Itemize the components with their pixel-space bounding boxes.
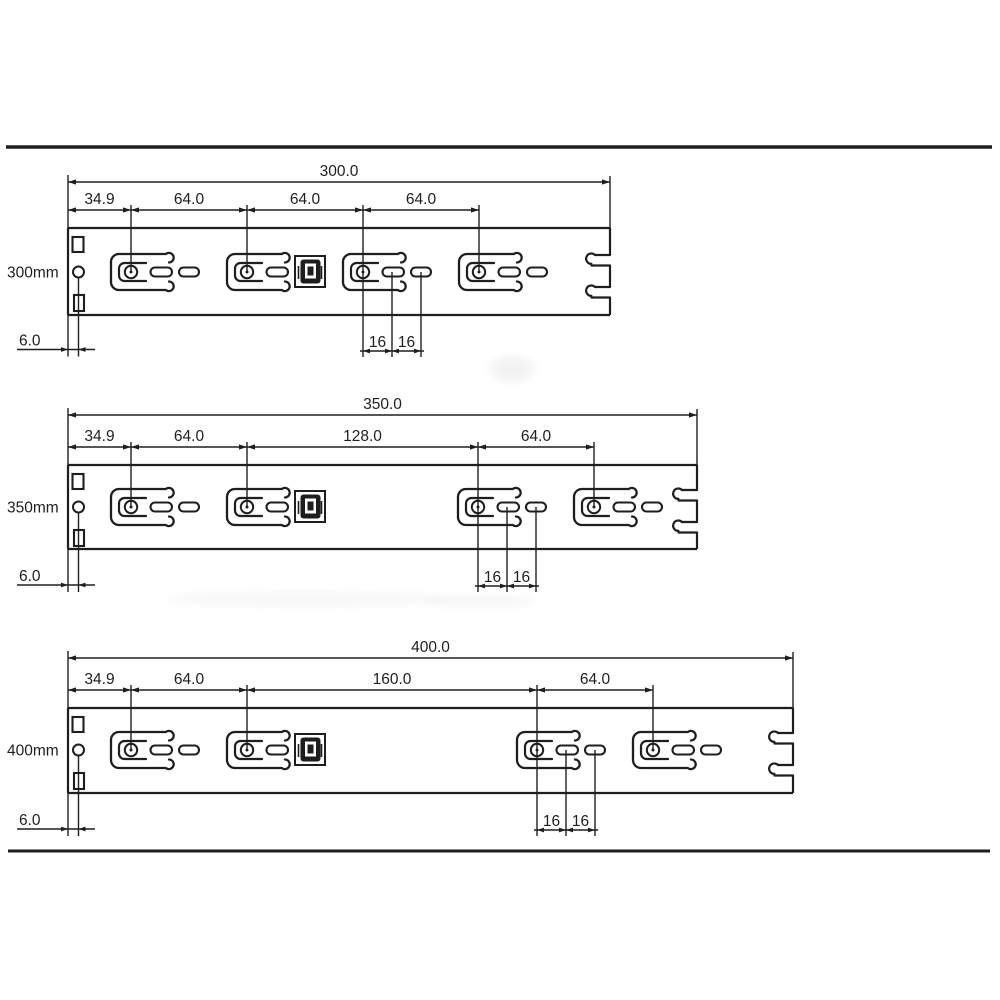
mounting-pill-slot (179, 268, 199, 277)
dim-arrow (239, 687, 247, 692)
pill-slot (267, 503, 289, 512)
keyhole-outer-outline (111, 488, 174, 526)
segment-dim-label: 64.0 (174, 191, 205, 208)
dim-arrow (123, 207, 131, 212)
dim-arrow (61, 827, 68, 832)
segment-dim-label: 160.0 (373, 671, 412, 688)
segment-dim-label: 64.0 (580, 671, 611, 688)
dim-arrow (239, 207, 247, 212)
latch-pin (308, 745, 314, 754)
offset-dim-label: 6.0 (19, 568, 41, 585)
keyhole-outer-outline (517, 731, 580, 769)
dimension-front-offset: 6.0 (17, 756, 95, 837)
dim-arrow (68, 179, 76, 184)
notch-hook-curl (586, 254, 595, 264)
rail-body (68, 708, 793, 793)
rear-hook-notch (769, 732, 793, 744)
dim-arrow (471, 207, 479, 212)
dim-arrow (363, 207, 371, 212)
keyhole-slot (111, 488, 174, 526)
keyhole-slot (343, 253, 406, 291)
dim-arrow (123, 444, 131, 449)
rear-hook-notch (769, 764, 793, 776)
rail-300mm: 300.034.964.064.064.016166.0300mm (7, 163, 610, 357)
front-hole (73, 745, 84, 756)
hole-spacing-label: 16 (369, 334, 386, 351)
scan-smudge (490, 356, 534, 382)
rail-length-label: 350mm (7, 500, 59, 517)
dimension-segments: 34.964.0128.064.0 (68, 428, 594, 507)
pill-slot (557, 746, 579, 755)
dim-arrow (247, 687, 255, 692)
pill-slot (498, 503, 520, 512)
dim-arrow (61, 583, 68, 588)
release-latch (295, 256, 325, 287)
dim-arrow (537, 687, 545, 692)
dim-arrow (586, 444, 594, 449)
segment-dim-label: 64.0 (521, 428, 552, 445)
dimension-total: 300.0 (68, 163, 610, 228)
rail-400mm: 400.034.964.0160.064.016166.0400mm (7, 639, 793, 836)
rail-350mm: 350.034.964.0128.064.016166.0350mm (7, 396, 697, 592)
keyhole-slot (227, 253, 290, 291)
segment-dim-label: 64.0 (174, 671, 205, 688)
scan-smudge (425, 594, 535, 608)
keyhole-slot (574, 488, 637, 526)
notch-hook-curl (673, 521, 682, 531)
dim-arrow (79, 827, 86, 832)
rear-hook-notch (586, 286, 610, 298)
segment-dim-label: 128.0 (343, 428, 382, 445)
notch-hook-curl (586, 286, 595, 296)
rail-length-label: 400mm (7, 743, 59, 760)
rail-length-label: 300mm (7, 265, 59, 282)
drawing-canvas: 300.034.964.064.064.016166.0300mm350.034… (0, 0, 1000, 1000)
segment-dim-label: 34.9 (84, 191, 114, 208)
keyhole-outer-outline (227, 253, 290, 291)
dim-arrow (79, 583, 86, 588)
hole-spacing-label: 16 (398, 334, 415, 351)
dim-arrow (68, 687, 76, 692)
front-rect-cutout (73, 717, 84, 732)
segment-dim-label: 64.0 (406, 191, 437, 208)
segment-dim-label: 64.0 (290, 191, 321, 208)
pill-slot (499, 268, 521, 277)
dim-arrow (68, 444, 76, 449)
dimension-total: 350.0 (68, 396, 697, 465)
offset-dim-label: 6.0 (19, 812, 41, 829)
drawing-page: 300.034.964.064.064.016166.0300mm350.034… (0, 0, 1000, 1000)
notch-hook-curl (769, 764, 778, 774)
dim-arrow (68, 207, 76, 212)
dim-arrow (355, 207, 363, 212)
dim-arrow (61, 347, 68, 352)
dim-arrow (247, 444, 255, 449)
total-length-label: 400.0 (411, 639, 450, 656)
keyhole-outer-outline (227, 488, 290, 526)
rail-body (68, 228, 610, 315)
offset-dim-label: 6.0 (19, 333, 41, 350)
pill-slot (267, 268, 289, 277)
pill-slot (383, 268, 405, 277)
mounting-pill-slot (179, 503, 199, 512)
dim-arrow (645, 687, 653, 692)
dim-arrow (689, 412, 697, 417)
notch-hook-curl (769, 732, 778, 742)
segment-dim-label: 34.9 (84, 428, 114, 445)
segment-dim-label: 64.0 (174, 428, 205, 445)
latch-pin (308, 502, 314, 511)
keyhole-outer-outline (459, 253, 522, 291)
dim-arrow (602, 179, 610, 184)
dimension-front-offset: 6.0 (17, 278, 95, 357)
scan-smudge (165, 591, 445, 607)
dim-arrow (131, 444, 139, 449)
front-rect-cutout (73, 474, 84, 489)
dim-arrow (68, 655, 76, 660)
keyhole-slot (227, 488, 290, 526)
dimension-segments: 34.964.0160.064.0 (68, 671, 653, 750)
hole-spacing-label: 16 (572, 813, 589, 830)
hole-spacing-label: 16 (543, 813, 560, 830)
pill-slot (673, 746, 695, 755)
hole-spacing-label: 16 (513, 569, 530, 586)
keyhole-outer-outline (111, 253, 174, 291)
keyhole-slot (517, 731, 580, 769)
segment-dim-label: 34.9 (84, 671, 114, 688)
keyhole-slot (111, 253, 174, 291)
rear-hook-notch (673, 489, 697, 501)
latch-pin (308, 267, 314, 276)
notch-hook-curl (673, 489, 682, 499)
mounting-pill-slot (179, 746, 199, 755)
release-latch (295, 734, 325, 765)
dim-arrow (470, 444, 478, 449)
keyhole-outer-outline (227, 731, 290, 769)
dim-arrow (79, 347, 86, 352)
front-hole (73, 502, 84, 513)
pill-slot (151, 268, 173, 277)
dimension-front-offset: 6.0 (17, 513, 95, 593)
keyhole-slot (459, 253, 522, 291)
pill-slot (614, 503, 636, 512)
rail-body (68, 465, 697, 549)
keyhole-outer-outline (633, 731, 696, 769)
keyhole-slot (111, 731, 174, 769)
hole-spacing-label: 16 (484, 569, 501, 586)
keyhole-outer-outline (111, 731, 174, 769)
rear-hook-notch (673, 521, 697, 533)
dim-arrow (247, 207, 255, 212)
release-latch (295, 491, 325, 522)
mounting-pill-slot (527, 268, 547, 277)
dim-arrow (785, 655, 793, 660)
total-length-label: 300.0 (320, 163, 359, 180)
keyhole-slot (458, 488, 521, 526)
pill-slot (151, 503, 173, 512)
dim-arrow (123, 687, 131, 692)
mounting-pill-slot (642, 503, 662, 512)
rear-hook-notch (586, 254, 610, 266)
dim-arrow (529, 687, 537, 692)
keyhole-slot (633, 731, 696, 769)
pill-slot (267, 746, 289, 755)
total-length-label: 350.0 (363, 396, 402, 413)
front-hole (73, 267, 84, 278)
mounting-pill-slot (701, 746, 721, 755)
dim-arrow (68, 412, 76, 417)
dim-arrow (131, 207, 139, 212)
pill-slot (151, 746, 173, 755)
keyhole-outer-outline (343, 253, 406, 291)
keyhole-slot (227, 731, 290, 769)
dim-arrow (131, 687, 139, 692)
keyhole-outer-outline (458, 488, 521, 526)
front-rect-cutout (73, 237, 84, 252)
dim-arrow (478, 444, 486, 449)
keyhole-outer-outline (574, 488, 637, 526)
dim-arrow (239, 444, 247, 449)
dimension-segments: 34.964.064.064.0 (68, 191, 479, 272)
